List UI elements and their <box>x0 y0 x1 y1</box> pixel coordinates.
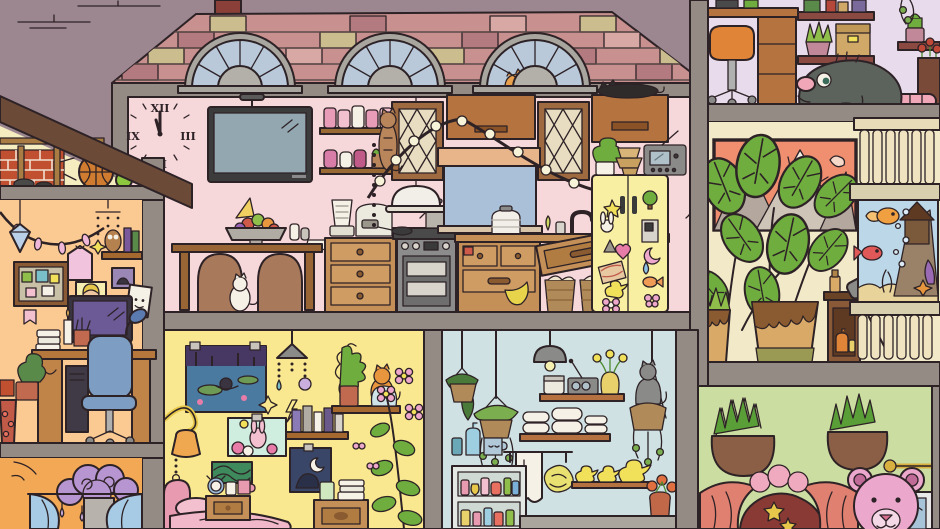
dollhouse-scene: XII III VI IX <box>0 0 940 529</box>
side-table[interactable] <box>314 480 368 529</box>
study-bedroom <box>0 200 156 447</box>
study-floor <box>0 443 164 458</box>
owl-figurine[interactable] <box>105 230 121 252</box>
book-stack-desk[interactable] <box>36 330 60 351</box>
divider-right-edge <box>932 386 940 529</box>
drippy-pot-large[interactable] <box>752 302 818 362</box>
blender[interactable] <box>330 200 354 236</box>
bunny-painting[interactable] <box>228 414 286 456</box>
table-leg <box>305 252 314 310</box>
tv[interactable] <box>208 107 312 182</box>
flower-pot-bricks <box>0 380 16 444</box>
playroom <box>698 386 932 529</box>
cardboard-box[interactable] <box>836 24 870 56</box>
green-cup[interactable] <box>320 482 334 500</box>
exposed-brick <box>0 150 76 188</box>
teddy-bear[interactable] <box>848 468 924 529</box>
spray-bottle[interactable] <box>830 270 840 292</box>
small-bottle <box>849 340 855 352</box>
window-sill <box>438 226 542 233</box>
bathroom <box>442 330 677 529</box>
upstairs-office <box>698 0 940 122</box>
divider-mid <box>424 330 442 529</box>
fish-tank[interactable] <box>854 200 938 302</box>
divider-left <box>142 158 164 529</box>
fridge[interactable] <box>592 175 668 312</box>
magnet-fish[interactable] <box>643 277 663 287</box>
canopy-curtains[interactable] <box>28 494 142 529</box>
counter-left <box>325 200 396 312</box>
aloe-plant[interactable] <box>806 22 832 56</box>
hanging-shirt[interactable] <box>68 246 92 280</box>
arch-windows <box>178 33 597 93</box>
plant-room-floor <box>676 362 940 386</box>
cabinet-over-fridge[interactable] <box>592 95 668 142</box>
window-glass <box>444 166 536 226</box>
divider-right-lower <box>676 330 698 529</box>
magnet-dispenser[interactable] <box>642 220 658 242</box>
divider-right-upper <box>690 0 708 386</box>
chair[interactable] <box>258 254 302 312</box>
table-leg <box>180 252 189 310</box>
brick-roof <box>100 12 710 93</box>
soap-bottle[interactable] <box>452 438 462 455</box>
glass-jar[interactable] <box>544 376 564 394</box>
rat-ear <box>797 77 815 91</box>
clock-numeral-3: III <box>180 130 195 143</box>
toiletry-shelving[interactable] <box>452 466 526 529</box>
table-top <box>172 244 322 252</box>
attic-floor <box>0 186 164 200</box>
white-mug[interactable] <box>226 482 236 495</box>
nightstand-left[interactable] <box>206 476 255 520</box>
clock-numeral-9: IX <box>126 130 140 143</box>
scene-canvas: XII III VI IX <box>0 0 940 529</box>
canopy-bedroom <box>0 458 142 529</box>
clock-center <box>158 132 163 137</box>
book-stack[interactable] <box>338 480 364 500</box>
pond-painting[interactable] <box>186 342 266 412</box>
magnet-drop[interactable] <box>644 262 649 274</box>
monstera-room <box>676 118 940 386</box>
bathtub-rim[interactable] <box>520 516 676 529</box>
yellow-bedroom <box>164 330 430 529</box>
alarm-clock[interactable] <box>207 476 225 494</box>
